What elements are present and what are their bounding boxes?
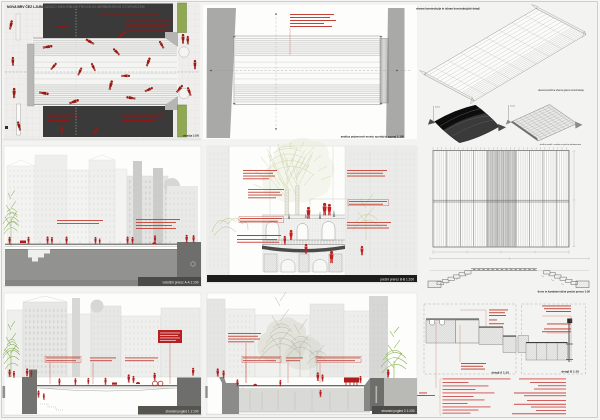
svg-text:vzdolžni prerez A-A 1:100: vzdolžni prerez A-A 1:100 <box>162 281 198 285</box>
svg-text:situacija 1:100: situacija 1:100 <box>183 135 200 138</box>
svg-text:detajl A 1:10: detajl A 1:10 <box>492 371 510 375</box>
svg-text:stranski pogled 2 1:100: stranski pogled 2 1:100 <box>382 409 415 413</box>
svg-text:mod 2: mod 2 <box>510 106 515 108</box>
svg-text:analiza pojavnosti mostu spoda: analiza pojavnosti mostu spodaj in zgora… <box>341 135 405 139</box>
svg-text:stranski pogled 1 1:100: stranski pogled 1 1:100 <box>166 409 199 413</box>
svg-text:detajl B 1:10: detajl B 1:10 <box>561 370 579 374</box>
svg-text:prečni prerez B-B 1:100: prečni prerez B-B 1:100 <box>380 277 414 281</box>
svg-text:aksonometrična shema glavne ko: aksonometrična shema glavne konstrukcije <box>538 89 584 92</box>
svg-text:shema konstrukcije in izbran k: shema konstrukcije in izbran konstrukcij… <box>416 7 480 11</box>
svg-text:mod 1: mod 1 <box>435 107 440 109</box>
svg-text:statični model - analiza na pr: statični model - analiza na prečne obrem… <box>540 143 582 146</box>
svg-text:tloris in karakteristični preč: tloris in karakteristični prečni prerez … <box>538 290 591 294</box>
